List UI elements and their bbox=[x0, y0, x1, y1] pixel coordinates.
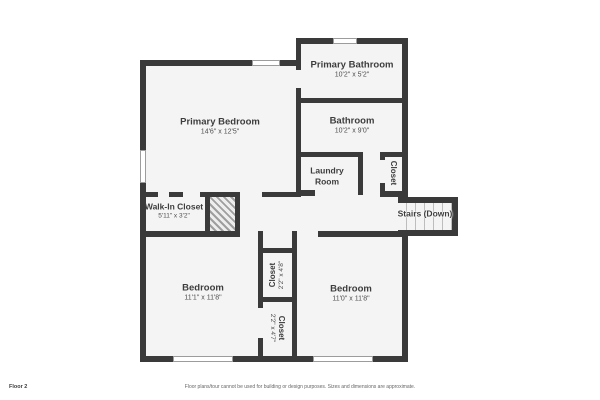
room-name: Primary Bedroom bbox=[180, 117, 260, 129]
wall bbox=[380, 183, 385, 191]
hatched-shaft bbox=[210, 197, 235, 231]
room-label-closet-bottom: Closet 2'2" x 4'7" bbox=[268, 314, 286, 342]
wall bbox=[380, 191, 408, 197]
window bbox=[140, 150, 146, 183]
room-label-closet-top: Closet 2'2" x 4'8" bbox=[268, 261, 286, 289]
wall bbox=[258, 338, 263, 356]
room-label-hall-closet: Closet bbox=[388, 161, 398, 185]
room-dimensions: 11'1" x 11'8" bbox=[184, 295, 221, 304]
wall bbox=[296, 152, 362, 157]
room-label-bathroom: Bathroom 10'2" x 9'0" bbox=[330, 116, 375, 137]
room-name: Closet bbox=[388, 161, 398, 185]
room-name: Primary Bathroom bbox=[311, 60, 394, 72]
room-dimensions: 2'2" x 4'7" bbox=[268, 314, 276, 342]
room-name: Laundry Room bbox=[301, 165, 353, 186]
room-dimensions: 14'6" x 12'5" bbox=[201, 129, 239, 138]
disclaimer-text: Floor plans/tour cannot be used for buil… bbox=[0, 384, 600, 390]
room-name: Bathroom bbox=[330, 116, 375, 128]
room-name: Closet bbox=[268, 263, 278, 287]
wall bbox=[358, 152, 363, 195]
room-label-stairs: Stairs (Down) bbox=[398, 209, 453, 220]
window bbox=[313, 356, 373, 362]
wall bbox=[402, 230, 408, 362]
wall bbox=[380, 152, 385, 160]
wall bbox=[169, 192, 183, 197]
floor-plan-canvas: Primary Bedroom 14'6" x 12'5" Primary Ba… bbox=[0, 0, 600, 400]
window bbox=[252, 60, 280, 66]
room-name: Stairs (Down) bbox=[398, 209, 453, 220]
room-dimensions: 11'0" x 11'8" bbox=[332, 296, 369, 305]
wall bbox=[258, 297, 297, 302]
window bbox=[173, 356, 233, 362]
wall bbox=[296, 98, 408, 103]
room-dimensions: 10'2" x 9'0" bbox=[335, 128, 370, 137]
wall bbox=[258, 248, 297, 253]
wall bbox=[318, 231, 402, 237]
room-label-bedroom-left: Bedroom 11'1" x 11'8" bbox=[182, 283, 224, 304]
room-name: Walk-In Closet bbox=[145, 202, 203, 213]
room-label-laundry-room: Laundry Room bbox=[301, 165, 353, 186]
room-label-primary-bathroom: Primary Bathroom 10'2" x 5'2" bbox=[311, 60, 394, 81]
room-label-bedroom-right: Bedroom 11'0" x 11'8" bbox=[330, 284, 372, 305]
wall bbox=[398, 230, 458, 236]
room-dimensions: 10'2" x 5'2" bbox=[335, 72, 370, 81]
room-dimensions: 5'11" x 3'2" bbox=[158, 212, 190, 220]
wall bbox=[140, 192, 158, 197]
wall bbox=[262, 192, 301, 197]
wall bbox=[140, 231, 240, 237]
window bbox=[333, 38, 357, 44]
room-name: Bedroom bbox=[330, 284, 372, 296]
room-dimensions: 2'2" x 4'8" bbox=[278, 261, 286, 289]
wall bbox=[296, 44, 301, 70]
room-name: Bedroom bbox=[182, 283, 224, 295]
room-label-primary-bedroom: Primary Bedroom 14'6" x 12'5" bbox=[180, 117, 260, 138]
wall bbox=[402, 38, 408, 203]
room-label-walk-in-closet: Walk-In Closet 5'11" x 3'2" bbox=[145, 202, 203, 221]
wall bbox=[381, 152, 408, 157]
room-name: Closet bbox=[276, 316, 286, 340]
